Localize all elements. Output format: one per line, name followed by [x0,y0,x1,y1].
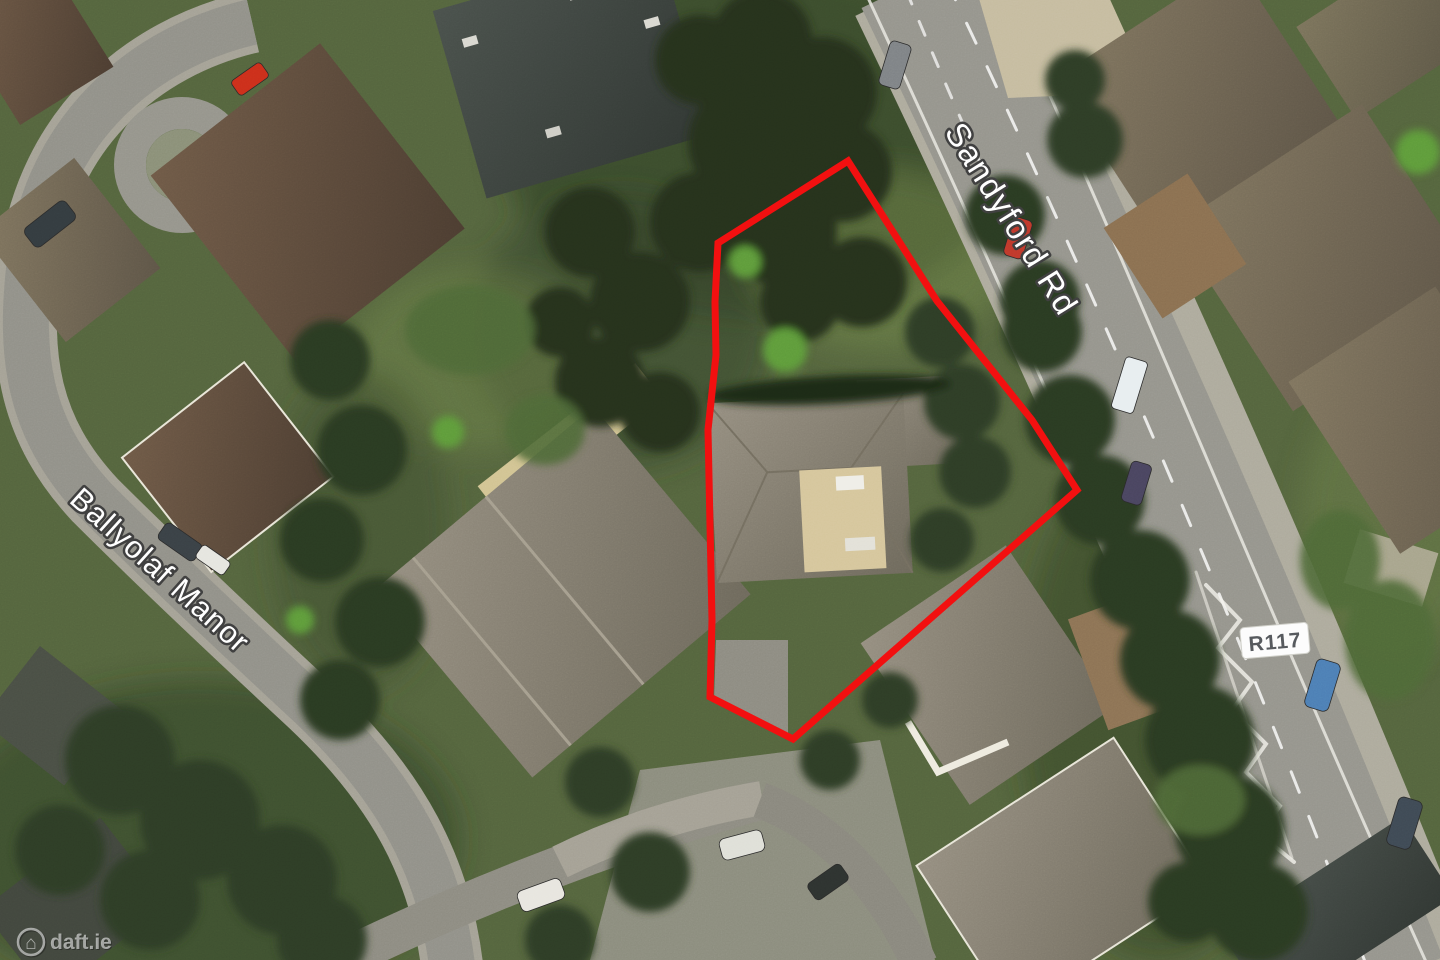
map-canvas[interactable]: Sandyford Rd Ballyolaf Manor R117 ⌂ daft… [0,0,1440,960]
photo-grain [0,0,1440,960]
aerial-map-view[interactable]: Sandyford Rd Ballyolaf Manor R117 ⌂ daft… [0,0,1440,960]
